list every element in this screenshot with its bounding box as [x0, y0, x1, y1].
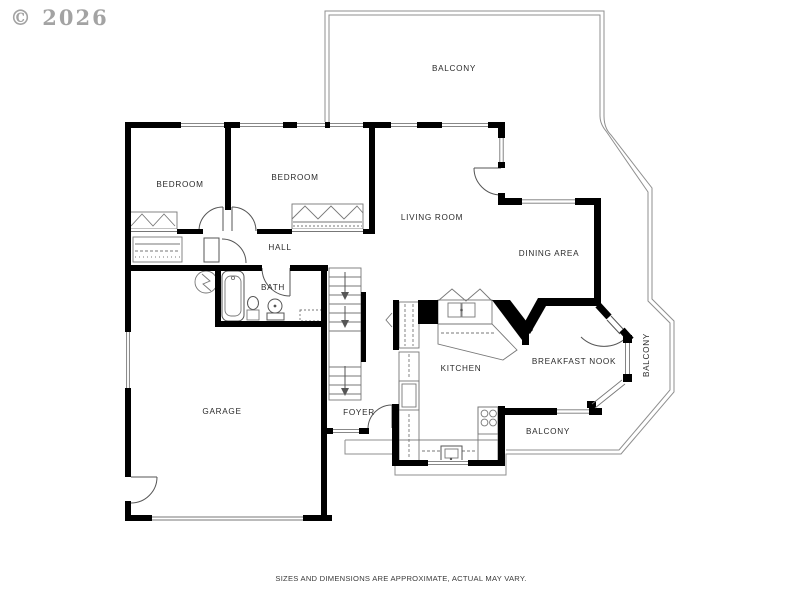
- toilet: [267, 299, 284, 320]
- bath-closet-dashed: [300, 310, 324, 321]
- room-label-bath: BATH: [261, 283, 285, 292]
- room-label-living-room: LIVING ROOM: [401, 213, 463, 222]
- room-label-dining-area: DINING AREA: [519, 249, 579, 258]
- door-bedroom-1: [199, 207, 223, 231]
- room-label-bedroom-2: BEDROOM: [271, 173, 318, 182]
- door-nook-balcony: [581, 316, 627, 346]
- kitchen-counter-bottom: [399, 440, 498, 462]
- window-living-b: [442, 122, 488, 128]
- room-label-bedroom-1: BEDROOM: [156, 180, 203, 189]
- door-garage-side: [131, 477, 157, 503]
- kitchen-counter-top: [438, 289, 517, 360]
- closet-bedroom-1: [130, 212, 177, 229]
- room-label-garage: GARAGE: [202, 407, 241, 416]
- door-living-balcony: [474, 168, 501, 195]
- window-foyer: [333, 428, 359, 434]
- water-heater: [195, 271, 217, 293]
- garage-door: [152, 515, 303, 521]
- doors: [131, 168, 627, 503]
- copyright-watermark: © 2026: [10, 5, 109, 30]
- closet-hall-linen: [133, 237, 182, 262]
- room-label-balcony-side: BALCONY: [642, 333, 651, 377]
- balcony-outlines: [325, 11, 674, 475]
- window-bedroom-2a: [240, 122, 283, 128]
- room-label-foyer: FOYER: [343, 408, 375, 417]
- stairs: [329, 268, 361, 400]
- room-label-breakfast-nook: BREAKFAST NOOK: [532, 357, 616, 366]
- window-dining: [522, 198, 575, 205]
- room-label-hall: HALL: [268, 243, 291, 252]
- bath-sink: [247, 297, 259, 321]
- stair-direction-arrows: [341, 272, 349, 396]
- window-garage-west: [125, 332, 131, 388]
- window-nook-diagonal: [592, 380, 625, 408]
- closet-front-bedroom-2: [292, 229, 363, 234]
- closet-bedroom-2: [292, 204, 363, 229]
- room-labels: BALCONY BEDROOM BEDROOM LIVING ROOM DINI…: [156, 64, 651, 436]
- floor-plan-svg: BALCONY BEDROOM BEDROOM LIVING ROOM DINI…: [0, 0, 800, 600]
- window-living-a: [391, 122, 417, 128]
- window-bedroom-1: [181, 122, 224, 128]
- room-label-balcony-top: BALCONY: [432, 64, 476, 73]
- floor-plan-image: BALCONY BEDROOM BEDROOM LIVING ROOM DINI…: [0, 0, 800, 600]
- room-label-kitchen: KITCHEN: [441, 364, 482, 373]
- window-nook-south: [557, 408, 589, 415]
- closet-front-bedroom-1: [131, 229, 177, 234]
- door-bedroom-2: [232, 207, 256, 231]
- kitchen-counter-left: [399, 352, 419, 462]
- door-hall-closet: [204, 238, 246, 263]
- window-kitchen-sink: [428, 460, 468, 466]
- bathtub: [222, 271, 244, 321]
- room-label-balcony-bottom: BALCONY: [526, 427, 570, 436]
- window-nook-east: [626, 343, 630, 374]
- pantry: [386, 302, 419, 348]
- disclaimer-text: SIZES AND DIMENSIONS ARE APPROXIMATE, AC…: [275, 574, 526, 583]
- window-living-east: [498, 138, 505, 162]
- window-bedroom-2b: [297, 122, 363, 128]
- stove: [478, 407, 498, 462]
